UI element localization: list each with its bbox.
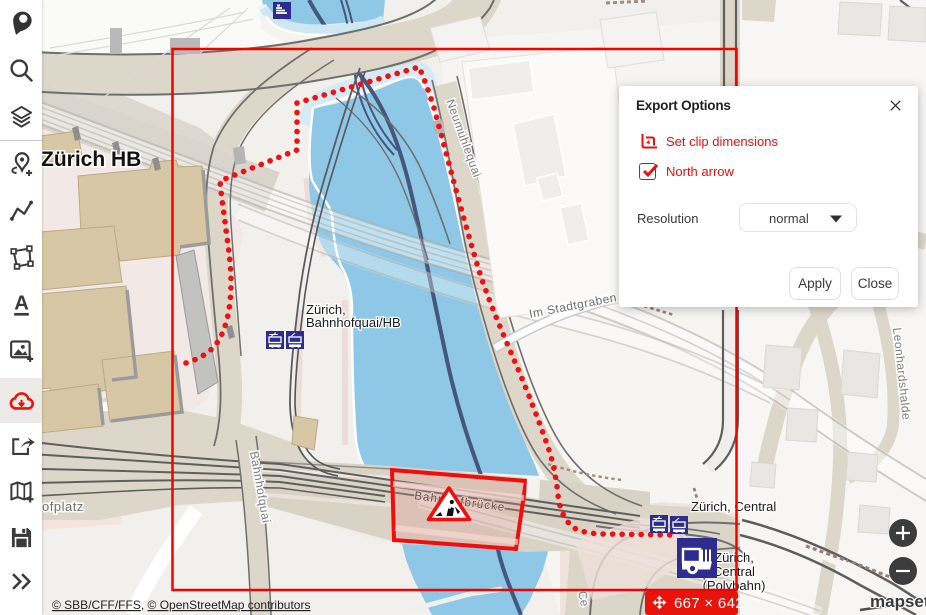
svg-text:ofplatz: ofplatz: [42, 499, 84, 514]
svg-text:Central: Central: [713, 564, 755, 579]
svg-text:Zürich HB: Zürich HB: [41, 148, 141, 171]
svg-text:mapset: mapset: [870, 592, 926, 611]
svg-text:Zürich, Central: Zürich, Central: [691, 499, 776, 514]
svg-text:© SBB/CFF/FFS, © OpenStreetMap: © SBB/CFF/FFS, © OpenStreetMap contribut…: [52, 598, 310, 612]
svg-text:667 × 642: 667 × 642: [674, 595, 744, 612]
svg-text:Zürich,: Zürich,: [714, 550, 754, 565]
svg-text:Bahnhofquai/HB: Bahnhofquai/HB: [306, 315, 401, 330]
svg-text:A: A: [14, 293, 29, 315]
